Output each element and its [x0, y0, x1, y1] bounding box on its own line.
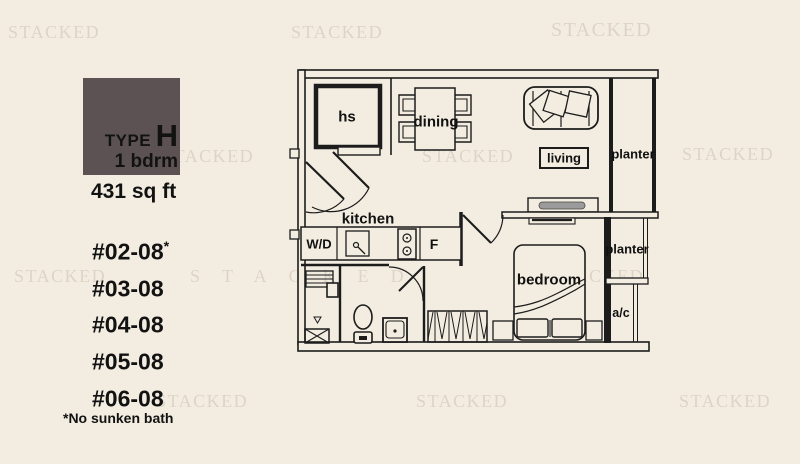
unit-number-list: #02-08* #03-08 #04-08 #05-08 #06-08: [92, 231, 169, 414]
room-label-hs: hs: [338, 110, 356, 125]
room-label-living: living: [547, 152, 581, 165]
unit-area: 431 sq ft: [91, 181, 176, 202]
type-value: H: [156, 118, 178, 153]
unit-number: #04-08: [92, 304, 169, 341]
footnote: *No sunken bath: [63, 410, 173, 426]
unit-number: #02-08*: [92, 231, 169, 268]
room-label-dining: dining: [414, 115, 459, 130]
room-label-planter-mid: planter: [605, 243, 648, 256]
floorplan-page: STACKED STACKED STACKED STACKED STACKED …: [0, 0, 800, 464]
unit-number: #03-08: [92, 268, 169, 305]
type-label: TYPE: [105, 131, 151, 150]
unit-number: #06-08: [92, 378, 169, 415]
room-label-ac: a/c: [612, 307, 629, 320]
unit-type-title: TYPE H: [70, 120, 178, 151]
room-label-planter-top: planter: [611, 148, 654, 161]
room-label-bedroom: bedroom: [517, 273, 581, 288]
unit-number: #05-08: [92, 341, 169, 378]
room-label-fridge: F: [430, 237, 439, 251]
room-label-kitchen: kitchen: [342, 212, 395, 227]
bedroom-count: 1 bdrm: [70, 152, 178, 171]
room-label-washer-dryer: W/D: [306, 238, 331, 251]
